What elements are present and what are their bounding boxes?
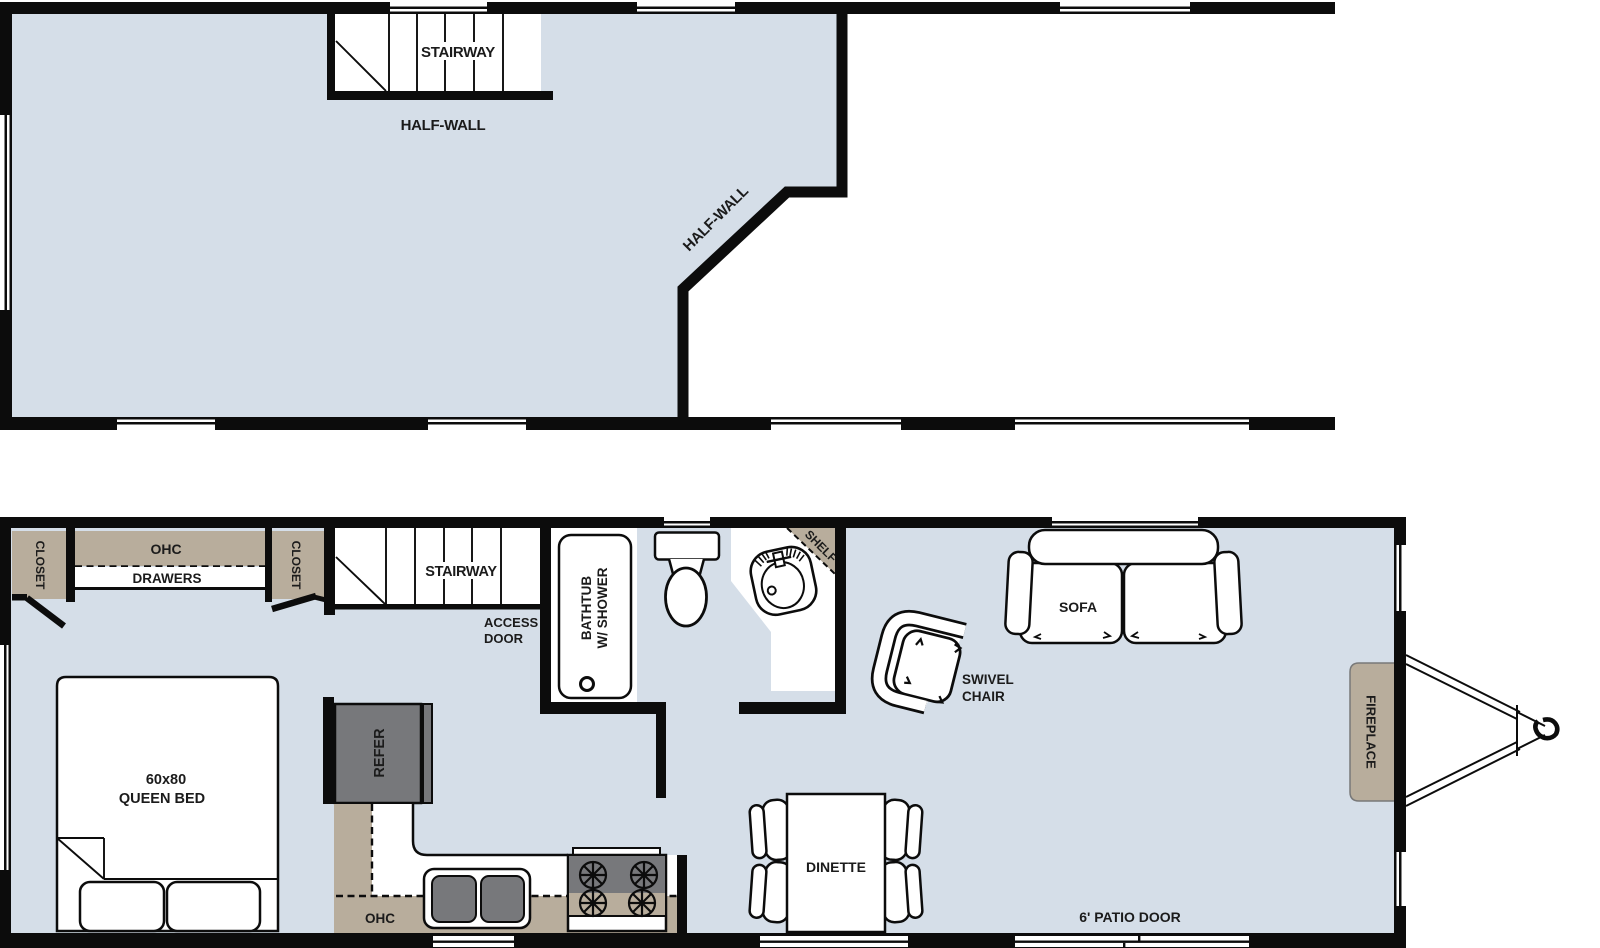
svg-text:DINETTE: DINETTE (806, 859, 866, 875)
svg-text:OHC: OHC (150, 541, 181, 557)
svg-text:FIREPLACE: FIREPLACE (1364, 695, 1379, 769)
svg-text:HALF-WALL: HALF-WALL (401, 117, 486, 134)
svg-text:60x80: 60x80 (146, 772, 186, 788)
svg-text:W/ SHOWER: W/ SHOWER (595, 567, 610, 648)
svg-text:CLOSET: CLOSET (289, 541, 303, 590)
svg-text:BATHTUB: BATHTUB (579, 576, 594, 640)
svg-text:STAIRWAY: STAIRWAY (425, 564, 497, 580)
svg-text:SWIVEL: SWIVEL (962, 672, 1014, 687)
svg-text:CHAIR: CHAIR (962, 689, 1005, 704)
svg-text:SOFA: SOFA (1059, 599, 1097, 615)
svg-text:REFER: REFER (372, 728, 388, 778)
svg-text:6' PATIO DOOR: 6' PATIO DOOR (1079, 909, 1181, 925)
svg-text:QUEEN BED: QUEEN BED (119, 791, 205, 807)
svg-text:DOOR: DOOR (484, 631, 524, 646)
svg-text:ACCESS: ACCESS (484, 615, 539, 630)
svg-text:CLOSET: CLOSET (33, 541, 47, 590)
svg-text:OHC: OHC (365, 911, 395, 926)
svg-text:STAIRWAY: STAIRWAY (421, 44, 495, 61)
svg-text:DRAWERS: DRAWERS (132, 571, 201, 586)
